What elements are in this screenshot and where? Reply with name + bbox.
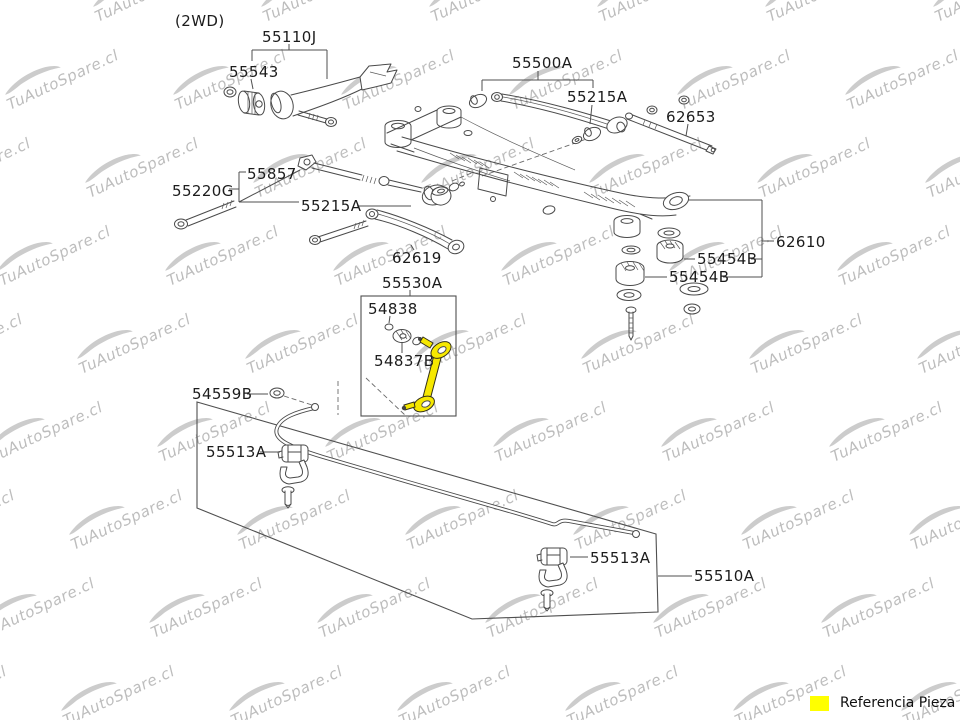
part-label-55215A-upper: 55215A [567,88,628,106]
rod-nut [647,106,657,114]
link-nut [379,177,389,186]
part-label-55530A: 55530A [382,274,443,292]
stack-nut [684,304,700,314]
rod-nut-2 [679,96,689,104]
legend-swatch [810,696,829,711]
part-label-55543: 55543 [229,63,279,81]
bushing-55454B-upper [657,240,683,263]
part-label-62619: 62619 [392,249,442,267]
diagram-background [0,0,960,720]
part-label-62610: 62610 [776,233,826,251]
arm-eye-left [366,209,378,219]
part-label-55454B-upper: 55454B [697,250,757,268]
bushing-55454B-lower [616,262,644,286]
small-washer [464,131,472,136]
bar-eye-left [312,404,319,411]
part-label-55513A-left: 55513A [206,443,267,461]
part-label-54838: 54838 [368,300,418,318]
washer-lower [617,290,641,301]
part-label-62653: 62653 [666,108,716,126]
variant-label: (2WD) [175,12,225,30]
bar-eye-right [633,531,640,538]
part-label-55454B-lower: 55454B [669,268,729,286]
arm-eye [492,93,503,102]
part-label-55215A-mid: 55215A [301,197,362,215]
part-label-54837B: 54837B [374,352,434,370]
part-label-54559B: 54559B [192,385,252,403]
part-label-55510A: 55510A [694,567,755,585]
washer-54559B [270,388,284,398]
part-label-55513A-right: 55513A [590,549,651,567]
parts-diagram: TuAutoSpare.clTuAutoSpare.clTuAutoSpare.… [0,0,960,720]
nut [224,87,236,97]
grommet-54837B [393,330,411,343]
washer-small [622,246,640,254]
legend: Referencia Pieza [810,695,955,711]
part-label-55857: 55857 [247,165,297,183]
link-stud-tip-bottom [402,406,406,410]
part-label-55110J: 55110J [262,28,317,46]
legend-label: Referencia Pieza [840,695,955,711]
part-label-55500A: 55500A [512,54,573,72]
highlight-swatch [810,696,829,711]
washer-top [658,228,680,238]
part-label-55220G: 55220G [172,182,234,200]
